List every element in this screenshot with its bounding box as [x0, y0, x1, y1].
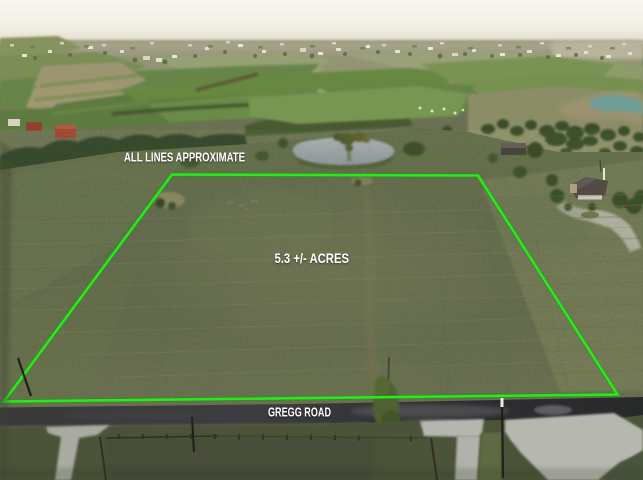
- svg-text:GREGG ROAD: GREGG ROAD: [268, 405, 331, 420]
- svg-text:ALL LINES APPROXIMATE: ALL LINES APPROXIMATE: [124, 150, 245, 165]
- svg-text:5.3 +/- ACRES: 5.3 +/- ACRES: [275, 250, 350, 266]
